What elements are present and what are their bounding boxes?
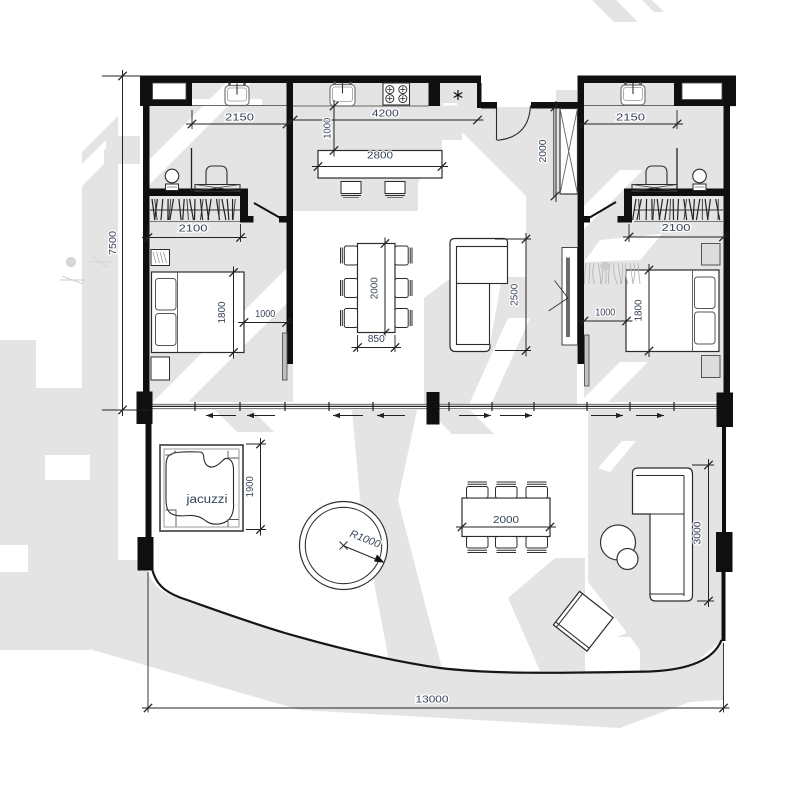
svg-text:1900: 1900 xyxy=(245,476,256,497)
svg-text:2000: 2000 xyxy=(493,515,520,526)
svg-text:1000: 1000 xyxy=(323,117,334,138)
svg-text:2000: 2000 xyxy=(538,139,549,162)
svg-text:1000: 1000 xyxy=(255,309,275,320)
svg-text:2100: 2100 xyxy=(179,224,209,235)
svg-text:2150: 2150 xyxy=(225,113,255,124)
svg-text:1800: 1800 xyxy=(217,301,228,323)
svg-text:1000: 1000 xyxy=(595,308,615,319)
svg-text:1800: 1800 xyxy=(634,299,645,321)
svg-text:2800: 2800 xyxy=(367,151,394,162)
svg-text:7500: 7500 xyxy=(108,231,119,255)
svg-text:2100: 2100 xyxy=(662,223,692,234)
svg-text:2000: 2000 xyxy=(370,277,381,299)
svg-text:3000: 3000 xyxy=(693,521,704,544)
svg-text:4200: 4200 xyxy=(372,109,400,120)
svg-text:13000: 13000 xyxy=(416,695,450,706)
svg-text:850: 850 xyxy=(368,334,385,345)
svg-text:2500: 2500 xyxy=(510,283,521,305)
svg-text:2150: 2150 xyxy=(616,113,646,124)
svg-text:jacuzzi: jacuzzi xyxy=(185,494,227,506)
